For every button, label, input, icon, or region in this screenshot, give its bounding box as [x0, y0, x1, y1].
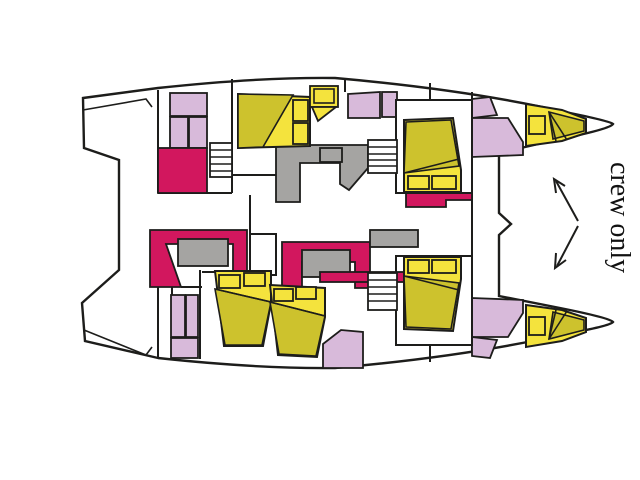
- bed-stbd-fwd-pillow-2: [432, 260, 456, 273]
- head-port-aft-c: [189, 117, 207, 148]
- bed-stbd-fwd-pillow-1: [408, 260, 429, 273]
- bed-port-fwd-pillow-1: [408, 176, 429, 189]
- stairs-port-aft: [210, 143, 232, 177]
- bed-stbd-mid-a-pillow-2: [244, 273, 265, 286]
- bed-port-fwd: [404, 118, 461, 192]
- crew-arrow-lower: [557, 226, 578, 266]
- head-stbd-aft-b: [186, 295, 198, 337]
- bed-stbd-fwd-mattress: [404, 276, 459, 329]
- crew-berth-stbd-pillow: [529, 317, 545, 335]
- crew-only-annotation: crew only: [554, 162, 635, 273]
- bed-stbd-fwd: [404, 257, 461, 331]
- galley-sink: [320, 148, 342, 162]
- crew-berth-port-pillow: [529, 116, 545, 134]
- crew-only-label: crew only: [604, 162, 635, 273]
- bed-port-fwd-mattress: [404, 120, 459, 173]
- stairs-port-fwd: [368, 140, 397, 173]
- head-stbd-aft-a: [171, 295, 185, 337]
- crew-arrow-upper: [556, 181, 578, 221]
- bed-stbd-mid-b: [270, 285, 325, 357]
- floorplan: crew only: [0, 0, 640, 480]
- nav-counter: [370, 230, 418, 247]
- bed-port-mid-pillow-2: [293, 123, 308, 144]
- companionway-box: [250, 234, 276, 275]
- head-stbd-fwd-small: [472, 337, 497, 358]
- bed-stbd-mid-b-pillow-2: [296, 287, 316, 299]
- saloon-table-left: [178, 239, 228, 266]
- crew-berth-port: [526, 104, 586, 146]
- bed-stbd-mid-a: [215, 271, 271, 346]
- seat-port-aft: [158, 148, 207, 193]
- head-port-mid-a: [348, 92, 380, 118]
- head-port-mid-b: [382, 92, 397, 117]
- head-port-aft-b: [170, 117, 188, 148]
- bed-port-mid-pillow-1: [293, 100, 308, 121]
- stairs-stbd: [368, 273, 397, 310]
- bed-stbd-mid-a-pillow-1: [219, 275, 240, 288]
- bed-stbd-mid-b-pillow-1: [274, 289, 293, 301]
- bed-port-fwd-pillow-2: [432, 176, 456, 189]
- head-port-aft-a: [170, 93, 207, 116]
- head-stbd-aft-c: [171, 338, 198, 358]
